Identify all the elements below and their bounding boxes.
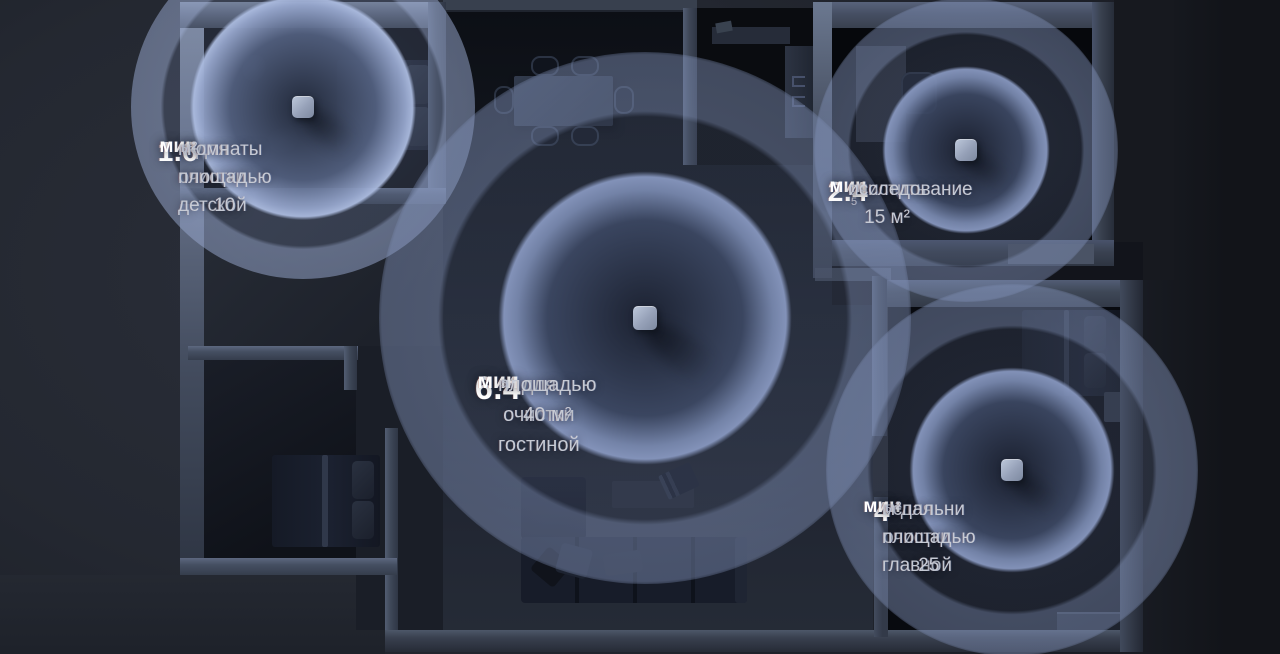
cabinet-handle — [792, 76, 805, 87]
background-bottom-left — [0, 575, 385, 654]
wall-empty-room-bottom — [188, 346, 358, 360]
background-top-right — [1114, 0, 1174, 280]
pillow — [352, 461, 374, 499]
wall-second-bedroom-right — [385, 428, 398, 648]
wall-second-bedroom-bottom — [180, 558, 397, 575]
description-line: исследование — [848, 176, 973, 204]
footnote-marker: 5 — [501, 369, 507, 399]
purifier-device-icon — [633, 306, 657, 330]
second-bed-blanket-fold — [322, 455, 328, 547]
purifier-device-icon — [955, 139, 977, 161]
purifier-device-icon — [1001, 459, 1023, 481]
pillow — [352, 501, 374, 539]
wall-top-living — [443, 0, 697, 12]
footnote-marker: 5 — [181, 135, 187, 163]
footnote-marker: 5 — [885, 495, 891, 523]
floor-plan-scene: 1.6 мин для очистки детской комнаты площ… — [0, 0, 1280, 654]
description-text: площадью 40 м² — [498, 370, 597, 430]
purifier-device-icon — [292, 96, 314, 118]
wall-return — [344, 346, 357, 390]
